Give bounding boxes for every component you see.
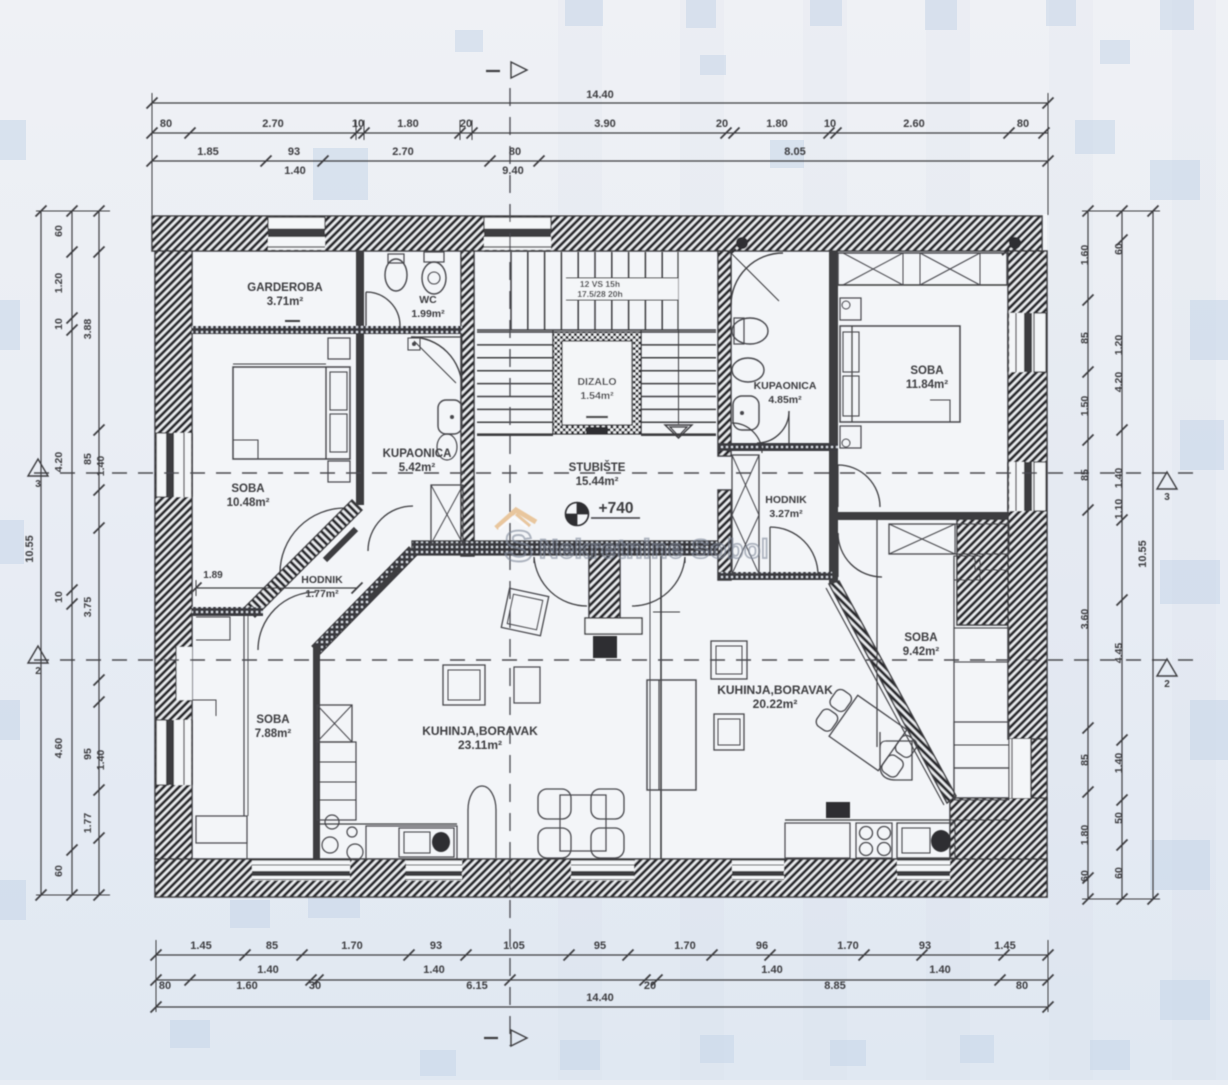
svg-text:1.80: 1.80 [766, 118, 787, 130]
svg-text:KUPAONICA: KUPAONICA [383, 448, 452, 460]
svg-text:6.15: 6.15 [466, 980, 487, 992]
svg-text:9.40: 9.40 [502, 165, 523, 177]
svg-text:14.40: 14.40 [586, 89, 614, 101]
svg-text:1.40: 1.40 [423, 964, 444, 976]
svg-text:2: 2 [1164, 679, 1170, 690]
svg-text:2: 2 [35, 666, 41, 677]
svg-text:4.85m²: 4.85m² [768, 394, 802, 406]
svg-text:10: 10 [53, 591, 65, 603]
svg-text:WC: WC [419, 294, 437, 306]
svg-text:1.40: 1.40 [257, 964, 278, 976]
svg-text:30: 30 [309, 980, 321, 992]
svg-text:1.77m²: 1.77m² [305, 588, 339, 600]
svg-text:1.40: 1.40 [95, 750, 107, 771]
svg-text:10.48m²: 10.48m² [227, 497, 270, 509]
svg-text:GARDEROBA: GARDEROBA [247, 282, 322, 294]
svg-text:SOBA: SOBA [231, 483, 264, 495]
svg-text:15.44m²: 15.44m² [576, 476, 619, 488]
svg-text:1.40: 1.40 [929, 964, 950, 976]
svg-text:1.77: 1.77 [82, 813, 94, 834]
svg-text:2.70: 2.70 [392, 146, 413, 158]
svg-text:3.71m²: 3.71m² [267, 296, 304, 308]
svg-text:80: 80 [1016, 980, 1028, 992]
svg-text:20: 20 [644, 980, 656, 992]
svg-text:85: 85 [1079, 332, 1091, 344]
svg-text:1.40: 1.40 [1113, 753, 1125, 774]
svg-text:1.60: 1.60 [236, 980, 257, 992]
svg-text:10: 10 [824, 118, 836, 130]
svg-text:12 VS 15h: 12 VS 15h [580, 279, 620, 289]
svg-text:3.27m²: 3.27m² [769, 508, 803, 520]
svg-text:3: 3 [35, 479, 41, 490]
svg-text:1.45: 1.45 [994, 940, 1015, 952]
svg-text:KUHINJA,BORAVAK: KUHINJA,BORAVAK [717, 683, 833, 697]
svg-text:HODNIK: HODNIK [301, 574, 343, 586]
svg-text:3.88: 3.88 [82, 319, 94, 340]
svg-text:1.99m²: 1.99m² [411, 308, 445, 320]
svg-text:2.70: 2.70 [262, 118, 283, 130]
svg-text:S: S [504, 522, 533, 571]
svg-text:HODNIK: HODNIK [765, 494, 807, 506]
svg-text:10: 10 [352, 118, 364, 130]
svg-text:20.22m²: 20.22m² [753, 697, 798, 711]
svg-text:9.42m²: 9.42m² [903, 646, 940, 658]
svg-text:1.40: 1.40 [1113, 468, 1125, 489]
svg-text:+740: +740 [599, 500, 634, 517]
svg-text:3.90: 3.90 [594, 118, 615, 130]
svg-text:23.11m²: 23.11m² [458, 738, 502, 752]
svg-text:85: 85 [1079, 754, 1091, 766]
svg-text:14.40: 14.40 [586, 992, 614, 1004]
svg-text:80: 80 [1017, 118, 1029, 130]
svg-text:1.89: 1.89 [203, 570, 223, 581]
svg-text:85: 85 [82, 453, 94, 465]
svg-text:85: 85 [1079, 469, 1091, 481]
svg-text:3: 3 [1164, 492, 1170, 503]
svg-text:1.50: 1.50 [1079, 396, 1091, 417]
svg-text:DIZALO: DIZALO [577, 376, 616, 388]
svg-text:10.55: 10.55 [1137, 540, 1149, 568]
svg-text:2.60: 2.60 [903, 118, 924, 130]
svg-text:STUBIŠTE: STUBIŠTE [569, 461, 626, 474]
svg-text:SOBA: SOBA [256, 714, 289, 726]
svg-text:4.60: 4.60 [53, 738, 65, 759]
svg-text:Nekretnine Sobol: Nekretnine Sobol [539, 534, 769, 564]
svg-text:80: 80 [159, 980, 171, 992]
svg-text:60: 60 [1113, 243, 1125, 255]
svg-text:1.20: 1.20 [53, 273, 65, 294]
svg-text:60: 60 [53, 865, 65, 877]
svg-text:4.20: 4.20 [53, 452, 65, 473]
svg-text:1.45: 1.45 [190, 940, 211, 952]
svg-text:10: 10 [53, 318, 65, 330]
svg-text:1.40: 1.40 [761, 964, 782, 976]
svg-text:KUPAONICA: KUPAONICA [754, 380, 817, 392]
svg-text:60: 60 [53, 225, 65, 237]
svg-text:60: 60 [1113, 867, 1125, 879]
svg-text:1.20: 1.20 [1113, 335, 1125, 356]
svg-text:80: 80 [509, 146, 521, 158]
svg-text:1.80: 1.80 [397, 118, 418, 130]
svg-text:8.05: 8.05 [784, 146, 805, 158]
svg-text:3.75: 3.75 [82, 597, 94, 618]
svg-text:93: 93 [430, 940, 442, 952]
svg-text:KUHINJA,BORAVAK: KUHINJA,BORAVAK [422, 724, 538, 738]
svg-text:1.80: 1.80 [1079, 825, 1091, 846]
svg-text:93: 93 [288, 146, 300, 158]
svg-text:1.10: 1.10 [1113, 499, 1125, 520]
svg-text:1.05: 1.05 [503, 940, 524, 952]
svg-text:85: 85 [266, 940, 278, 952]
svg-text:1.70: 1.70 [674, 940, 695, 952]
svg-text:17.5/28 20h: 17.5/28 20h [577, 289, 622, 299]
svg-text:4.45: 4.45 [1113, 643, 1125, 664]
svg-text:SOBA: SOBA [904, 632, 937, 644]
svg-text:SOBA: SOBA [910, 365, 943, 377]
svg-text:1.40: 1.40 [284, 165, 305, 177]
svg-text:1.70: 1.70 [837, 940, 858, 952]
svg-text:80: 80 [160, 118, 172, 130]
svg-text:4.20: 4.20 [1113, 372, 1125, 393]
svg-text:7.88m²: 7.88m² [255, 728, 292, 740]
svg-text:95: 95 [594, 940, 606, 952]
svg-text:1.60: 1.60 [1079, 245, 1091, 266]
svg-text:1.85: 1.85 [197, 146, 218, 158]
svg-text:1.70: 1.70 [341, 940, 362, 952]
svg-text:20: 20 [716, 118, 728, 130]
svg-text:3.60: 3.60 [1079, 609, 1091, 630]
svg-text:96: 96 [756, 940, 768, 952]
svg-text:93: 93 [919, 940, 931, 952]
svg-text:1.54m²: 1.54m² [580, 390, 614, 402]
svg-text:20: 20 [460, 118, 472, 130]
svg-text:8.85: 8.85 [824, 980, 845, 992]
svg-text:10.55: 10.55 [24, 535, 36, 563]
svg-text:95: 95 [82, 748, 94, 760]
svg-text:11.84m²: 11.84m² [906, 379, 948, 391]
svg-text:50: 50 [1113, 812, 1125, 824]
svg-text:1.40: 1.40 [95, 456, 107, 477]
svg-text:5.42m²: 5.42m² [399, 462, 436, 474]
